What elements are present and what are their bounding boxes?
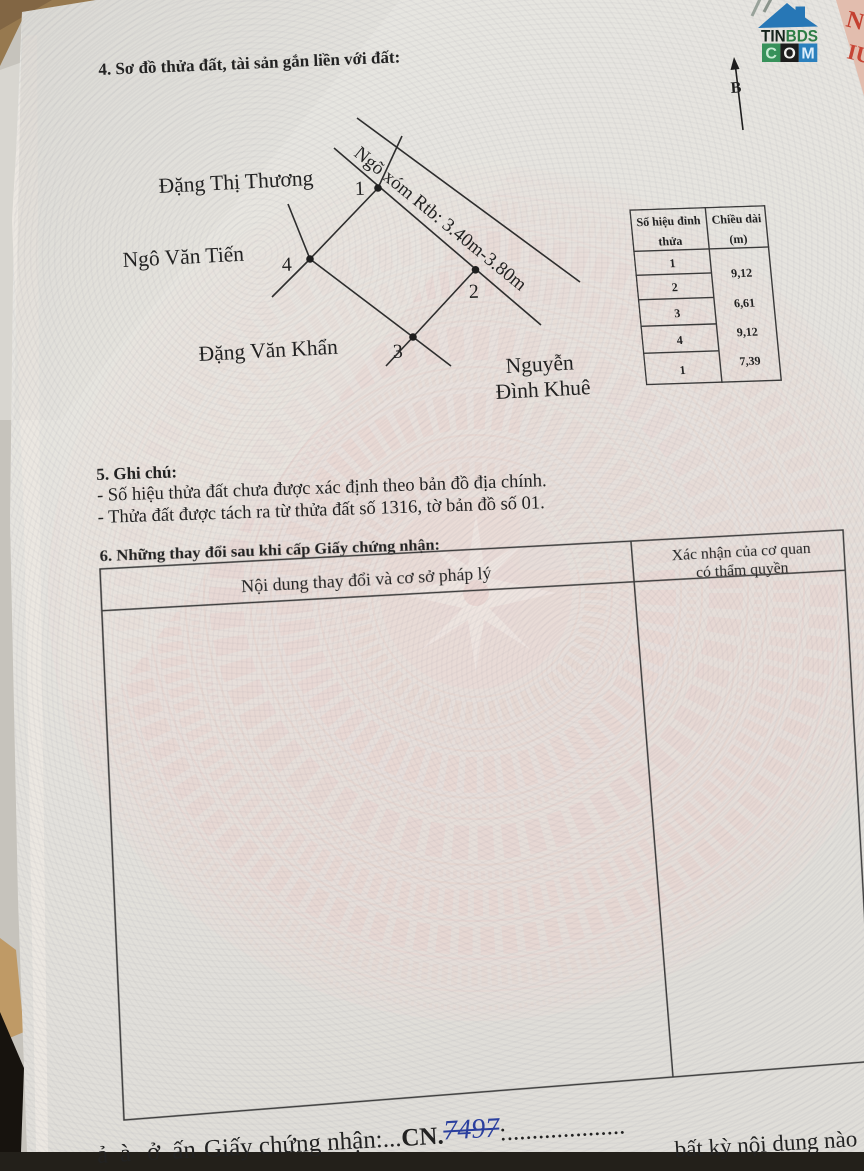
svg-text:2: 2 [671,280,678,294]
svg-text:6,61: 6,61 [733,296,755,311]
svg-text:Xác nhận của cơ quan: Xác nhận của cơ quan [671,540,811,564]
svg-text:1: 1 [669,256,676,270]
svg-text:M: M [801,46,814,63]
svg-text:Ngõ xóm Rtb: 3.40m-3.80m: Ngõ xóm Rtb: 3.40m-3.80m [350,143,531,296]
svg-text:Chiều dài: Chiều dài [711,211,763,227]
svg-text:3: 3 [392,341,403,363]
svg-text:7,39: 7,39 [739,354,761,369]
svg-text:B: B [730,79,742,97]
svg-text:1: 1 [354,178,365,200]
svg-text:TINBDS: TINBDS [761,28,818,46]
svg-text:(m): (m) [729,232,748,247]
svg-text:2: 2 [468,281,479,303]
svg-text:Đình Khuê: Đình Khuê [495,375,591,404]
svg-text:Ngô Văn Tiến: Ngô Văn Tiến [122,242,245,272]
svg-text:4: 4 [676,333,683,347]
svg-text:Đặng Văn Khẩn: Đặng Văn Khẩn [198,335,339,366]
svg-text:Nguyễn: Nguyễn [505,350,574,378]
svg-text:Số hiệu đỉnh: Số hiệu đỉnh [636,213,702,229]
svg-text:C: C [765,46,777,63]
svg-text:4: 4 [281,254,292,276]
svg-text:3: 3 [674,306,681,320]
svg-text:Đặng Thị Thương: Đặng Thị Thương [158,166,314,198]
svg-text:có thẩm quyền: có thẩm quyền [696,559,789,581]
svg-text:O: O [783,46,795,63]
svg-text:9,12: 9,12 [736,325,758,340]
svg-text:9,12: 9,12 [730,266,752,281]
svg-text:thửa: thửa [658,234,683,249]
svg-text:1: 1 [679,363,686,377]
